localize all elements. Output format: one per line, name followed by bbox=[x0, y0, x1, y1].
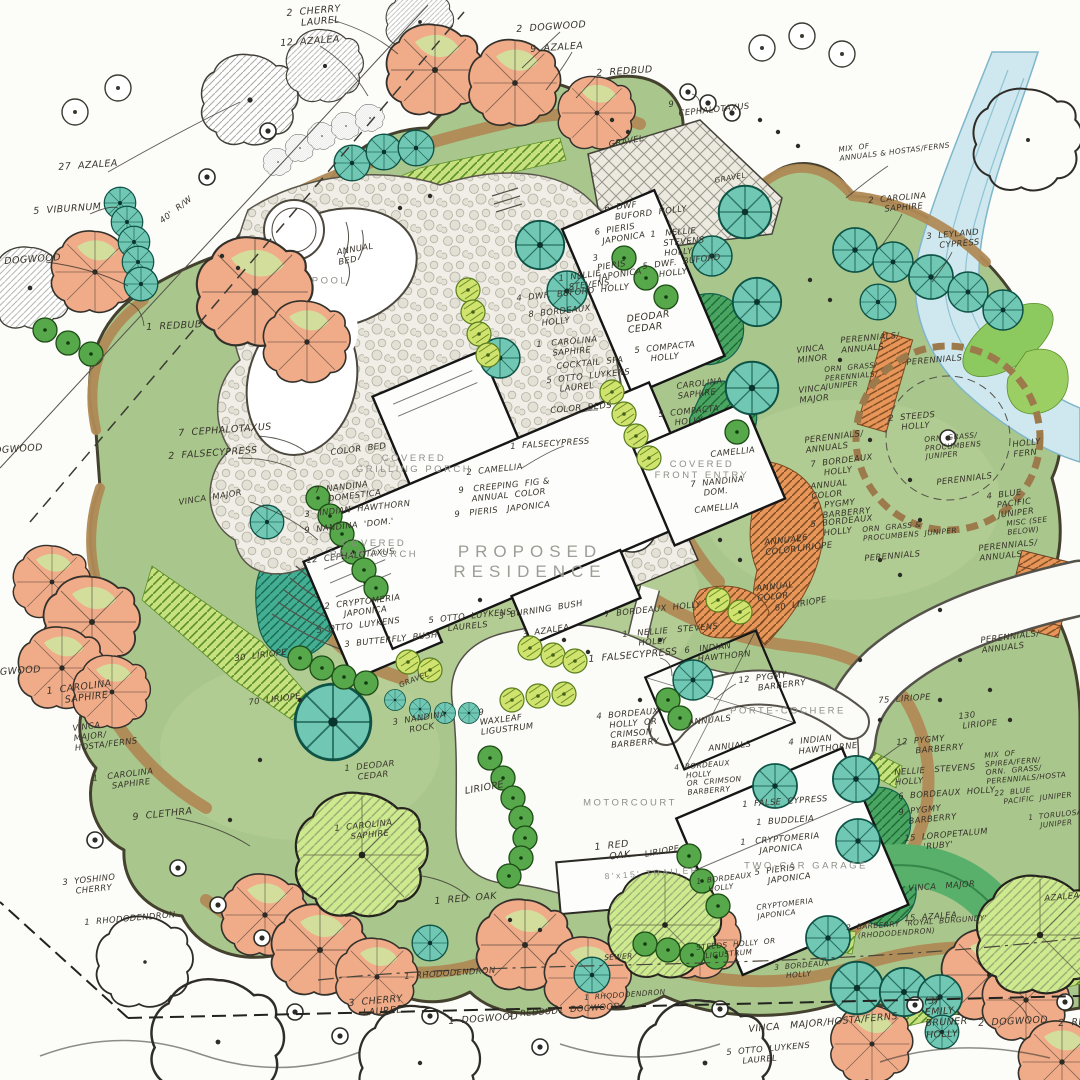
plan-drawing bbox=[0, 0, 1080, 1080]
landscape-plan: 2 CHERRY LAUREL12 AZALEA2 DOGWOOD9 AZALE… bbox=[0, 0, 1080, 1080]
